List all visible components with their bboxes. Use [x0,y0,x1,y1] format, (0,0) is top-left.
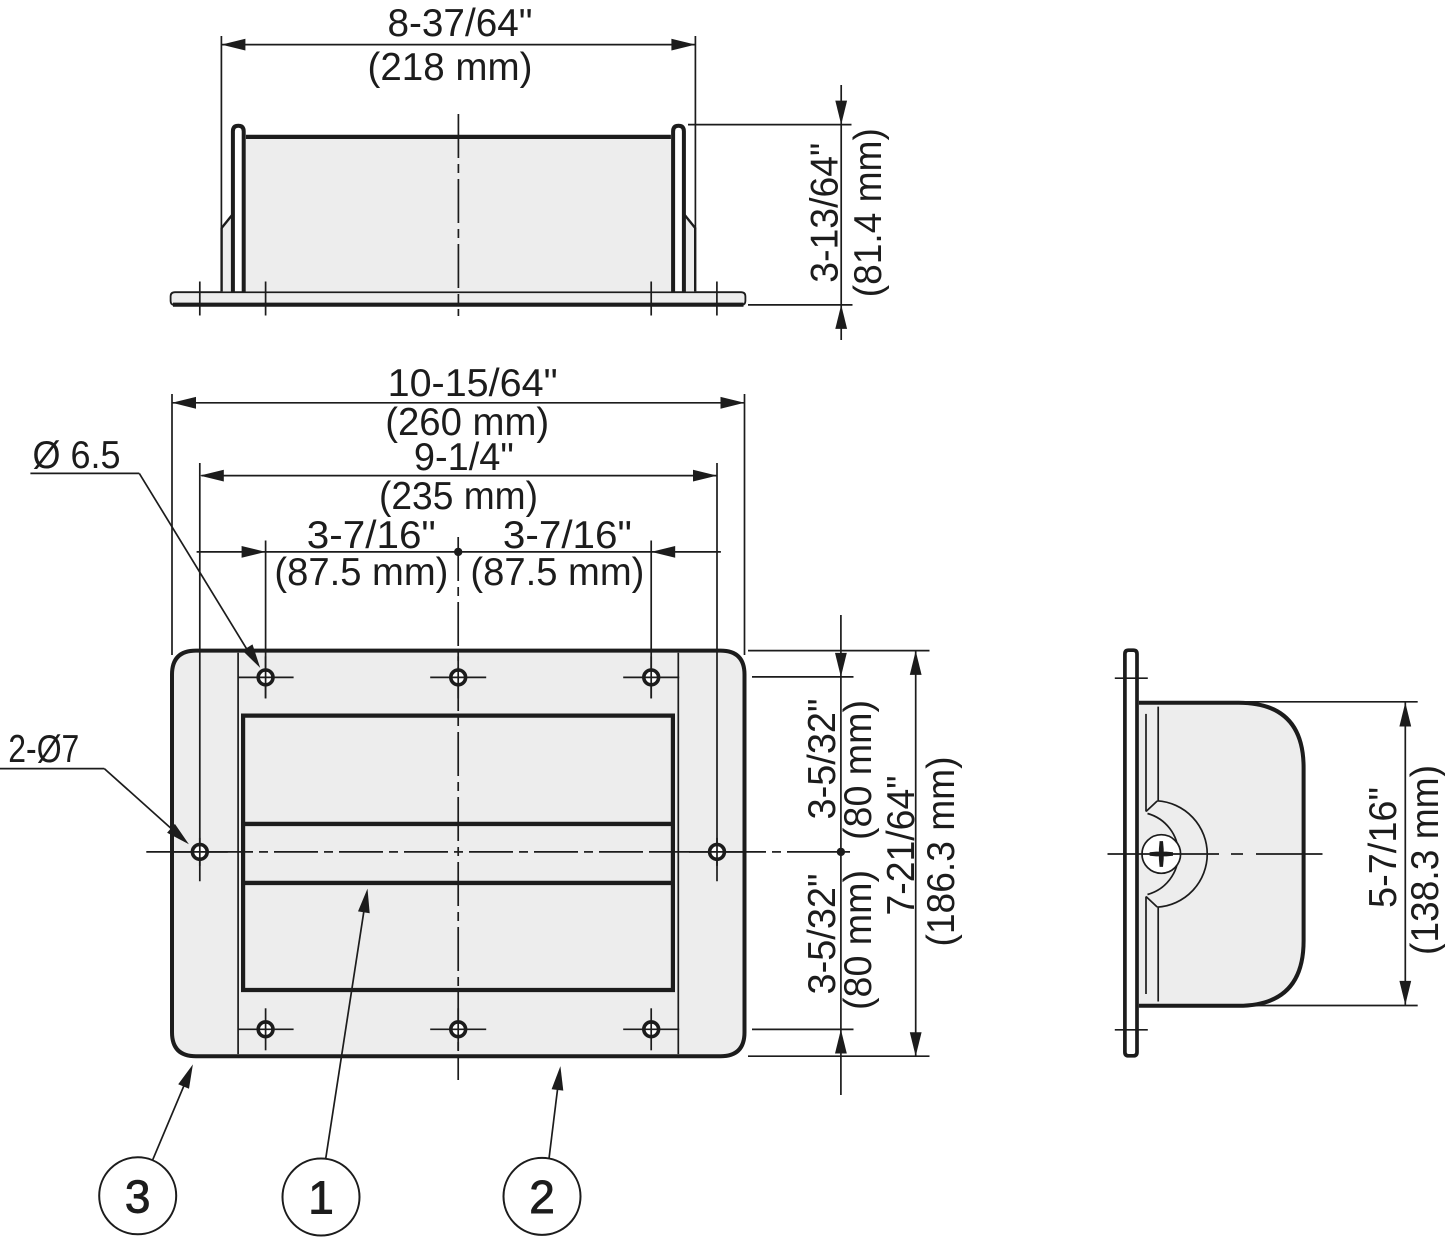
svg-text:2: 2 [529,1171,555,1223]
svg-text:8-37/64": 8-37/64" [388,2,533,45]
svg-text:(80 mm): (80 mm) [837,870,880,1010]
svg-text:3-13/64": 3-13/64" [803,143,846,283]
svg-text:7-21/64": 7-21/64" [880,776,923,916]
svg-text:(235 mm): (235 mm) [379,475,538,518]
svg-text:(80 mm): (80 mm) [837,700,880,840]
svg-text:5-7/16": 5-7/16" [1362,787,1405,908]
svg-text:(87.5 mm): (87.5 mm) [274,551,448,594]
svg-text:2-Ø7: 2-Ø7 [8,728,79,771]
svg-text:(186.3 mm): (186.3 mm) [920,757,963,947]
svg-text:(218 mm): (218 mm) [368,46,533,89]
svg-text:1: 1 [308,1172,334,1224]
svg-text:9-1/4": 9-1/4" [414,436,514,479]
svg-text:(81.4 mm): (81.4 mm) [847,128,890,297]
svg-text:3: 3 [125,1170,151,1222]
svg-text:10-15/64": 10-15/64" [388,362,558,405]
svg-text:(87.5 mm): (87.5 mm) [470,551,644,594]
svg-text:(138.3 mm): (138.3 mm) [1404,765,1445,955]
svg-text:Ø 6.5: Ø 6.5 [33,434,121,477]
